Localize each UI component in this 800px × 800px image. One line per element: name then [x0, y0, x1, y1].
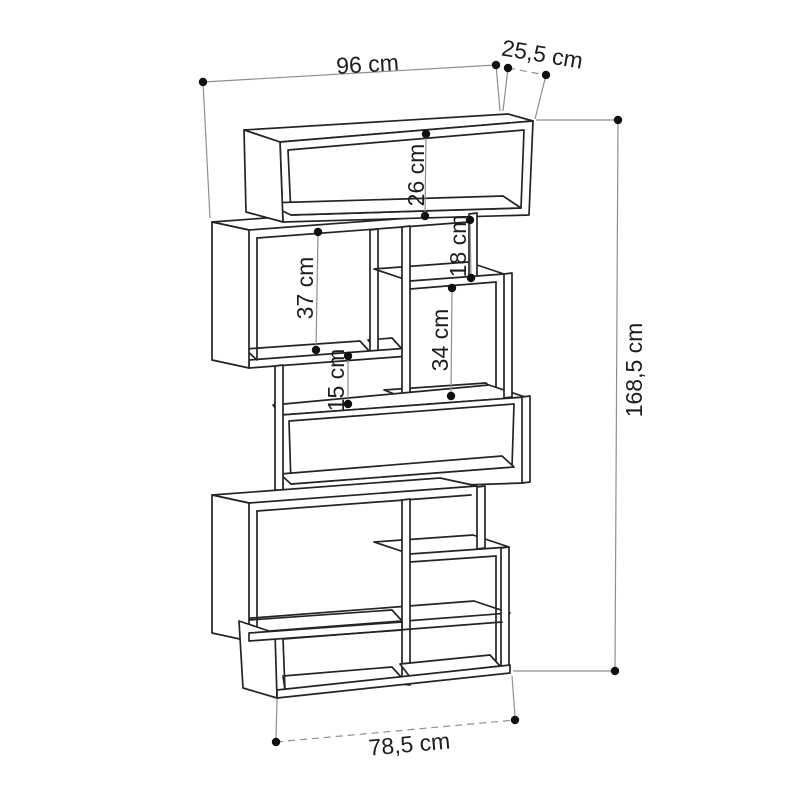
top-box	[244, 114, 533, 222]
dim-label-total-height: 168,5 cm	[621, 323, 647, 418]
dim-label-37cm: 37 cm	[292, 257, 318, 320]
dim-label-width-top: 96 cm	[335, 49, 399, 79]
dim-label-depth: 25,5 cm	[500, 35, 585, 74]
bottom-box	[239, 621, 510, 698]
dim-label-15cm: 15 cm	[323, 349, 349, 412]
dim-label-26cm: 26 cm	[403, 144, 429, 207]
shelf-row-lower-left-box	[212, 478, 510, 641]
dim-label-width-bottom: 78,5 cm	[367, 728, 451, 761]
diagram-canvas: 96 cm 25,5 cm 26 cm 18 cm 37 cm 34 cm 15…	[0, 0, 800, 800]
bookshelf-line-drawing	[212, 114, 533, 698]
bookshelf-dimension-diagram-page: 96 cm 25,5 cm 26 cm 18 cm 37 cm 34 cm 15…	[0, 0, 800, 800]
dim-label-18cm: 18 cm	[445, 215, 471, 278]
dim-label-34cm: 34 cm	[427, 309, 453, 372]
